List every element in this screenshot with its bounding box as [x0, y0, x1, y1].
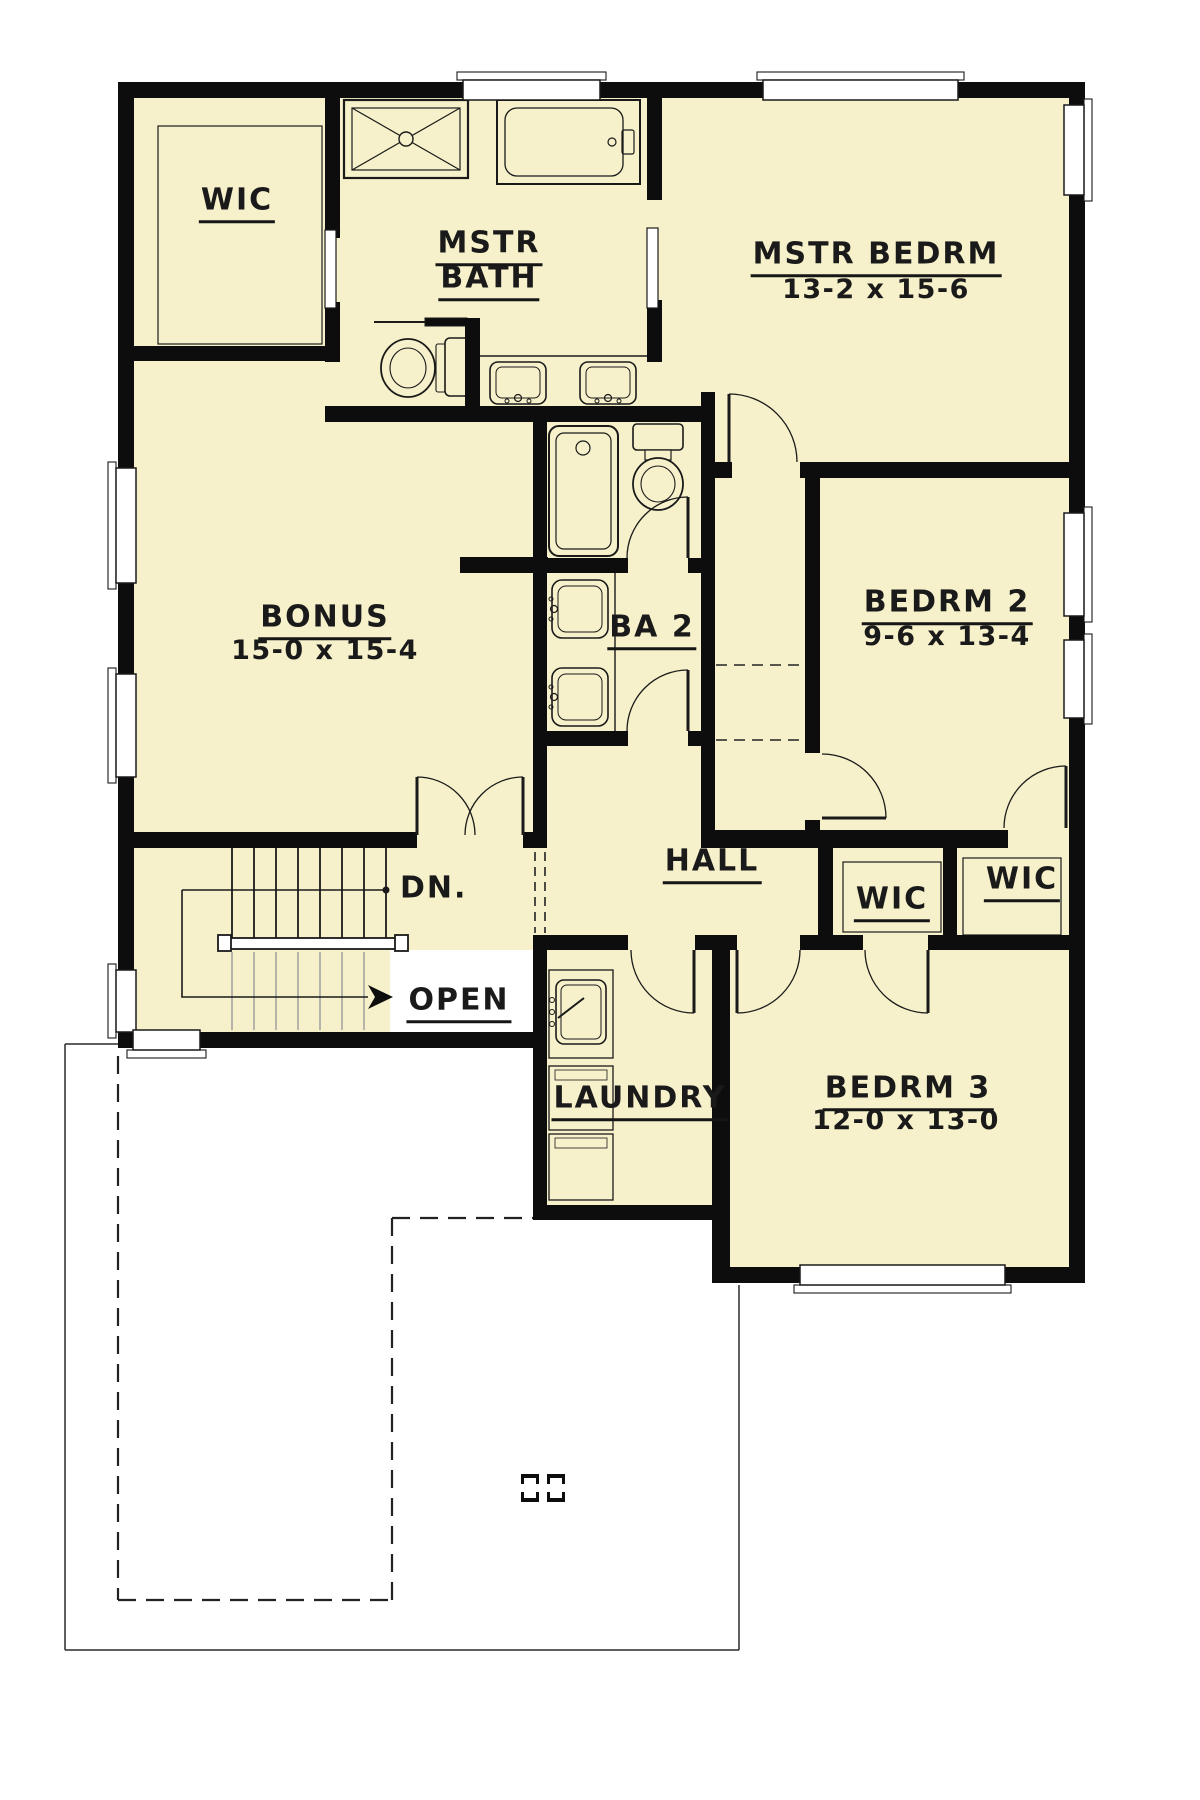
room-label-ba2: BA 2: [607, 611, 696, 643]
room-label-laundry: LAUNDRY: [552, 1082, 729, 1114]
room-label-mstr-bath-line2: BATH: [438, 262, 539, 294]
room-label-bedrm3: BEDRM 3: [823, 1072, 994, 1104]
room-label-wic-bedrm3: WIC: [854, 883, 930, 915]
room-label-mstr-bedrm-dims: 13-2 x 15-6: [780, 276, 972, 304]
ba2-toilet-icon: [633, 424, 683, 510]
annotation-open: OPEN: [406, 984, 511, 1016]
room-label-bedrm2-dims: 9-6 x 13-4: [861, 623, 1033, 651]
room-label-bonus: BONUS: [258, 601, 391, 633]
room-label-bonus-dims: 15-0 x 15-4: [229, 637, 421, 665]
floor-plan: WICMSTRBATHMSTR BEDRM13-2 x 15-6BONUS15-…: [0, 0, 1200, 1800]
room-label-mstr-bath-line1: MSTR: [435, 227, 542, 259]
column-markers: [521, 1474, 565, 1502]
room-label-bedrm3-dims: 12-0 x 13-0: [810, 1107, 1002, 1135]
room-label-bedrm2: BEDRM 2: [862, 586, 1033, 618]
room-label-mstr-bedrm: MSTR BEDRM: [751, 238, 1002, 270]
annotation-dn: DN.: [398, 872, 469, 904]
room-label-wic-bedrm2: WIC: [984, 863, 1060, 895]
room-label-wic-master: WIC: [199, 184, 275, 216]
stair-railing: [222, 938, 402, 949]
room-label-hall: HALL: [663, 845, 762, 877]
